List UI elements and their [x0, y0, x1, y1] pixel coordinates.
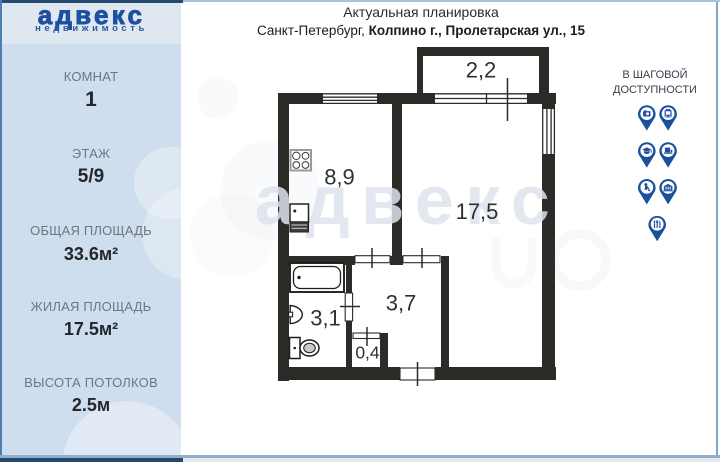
- svg-text:3,7: 3,7: [386, 291, 417, 316]
- svg-text:3,1: 3,1: [310, 306, 341, 331]
- svg-text:2,2: 2,2: [466, 58, 497, 83]
- svg-text:8,9: 8,9: [324, 164, 355, 189]
- svg-text:0,4: 0,4: [355, 343, 380, 363]
- svg-text:17,5: 17,5: [456, 199, 499, 224]
